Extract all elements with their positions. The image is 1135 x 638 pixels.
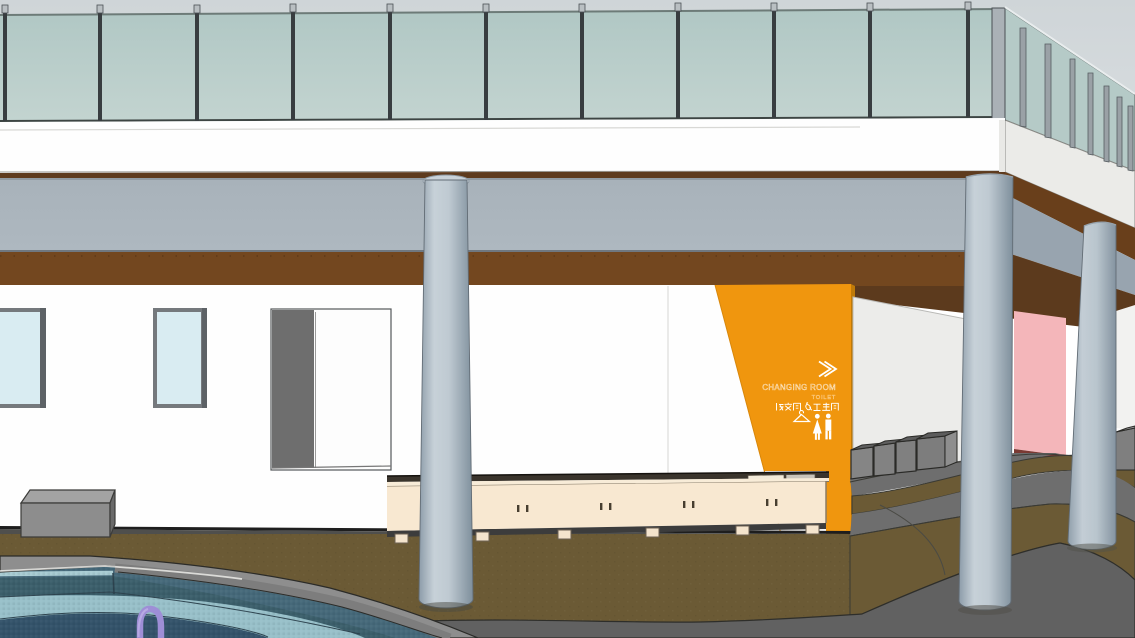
svg-text:TOILET: TOILET bbox=[812, 395, 836, 401]
svg-text:CHANGING ROOM: CHANGING ROOM bbox=[762, 383, 836, 392]
